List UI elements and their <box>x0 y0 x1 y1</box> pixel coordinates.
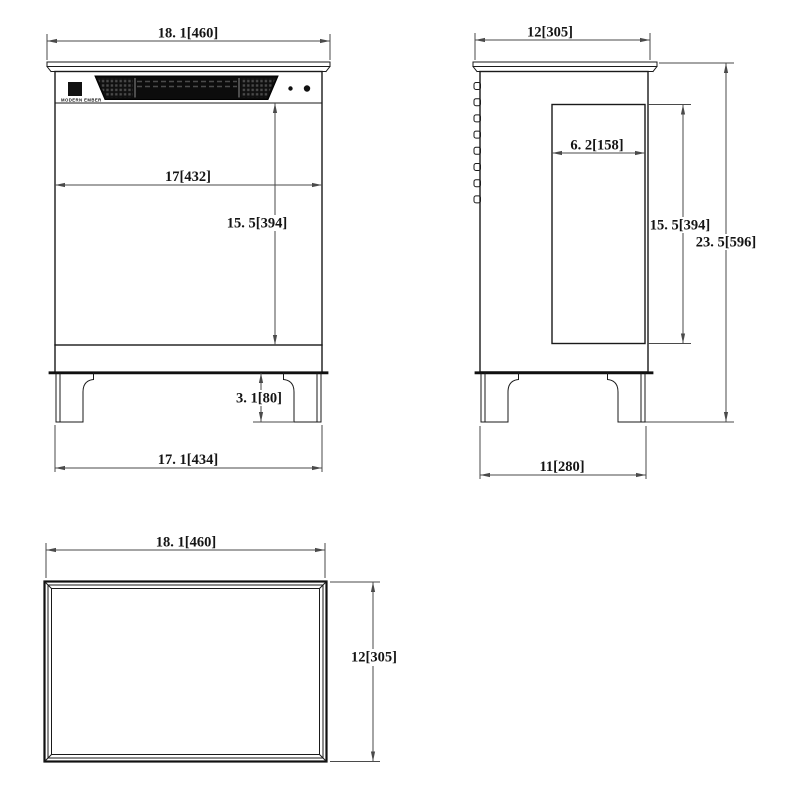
side-dim-top-depth: 12[305] <box>475 25 650 61</box>
indicator-dot-icon <box>288 86 292 90</box>
side-dim-overall-height-label: 23. 5[596] <box>696 235 756 251</box>
front-view: 18. 1[460] MODERN EMBER <box>47 26 330 473</box>
technical-drawing-page: 18. 1[460] MODERN EMBER <box>0 0 800 800</box>
top-view: 18. 1[460] 12[305] <box>45 535 401 762</box>
front-dim-leg-height: 3. 1[80] <box>230 373 294 422</box>
front-dim-overall-width-label: 18. 1[460] <box>158 26 218 42</box>
front-dim-inner-width: 17[432] <box>55 169 322 187</box>
front-vent-grille <box>95 76 278 100</box>
top-dim-depth-label: 12[305] <box>351 650 397 666</box>
front-body-outline <box>55 72 322 346</box>
front-right-leg <box>284 373 322 422</box>
top-panel-frame <box>45 582 327 762</box>
fireplace-dimension-drawing: 18. 1[460] MODERN EMBER <box>0 0 800 800</box>
side-left-leg <box>481 373 519 422</box>
brand-logo-mark <box>68 82 82 96</box>
front-dim-leg-height-label: 3. 1[80] <box>236 391 282 407</box>
side-right-leg <box>608 373 646 422</box>
top-dim-depth: 12[305] <box>330 582 400 762</box>
side-dim-top-depth-label: 12[305] <box>527 25 573 41</box>
side-dim-opening-height-label: 15. 5[394] <box>650 218 710 234</box>
top-dim-width: 18. 1[460] <box>46 535 325 579</box>
brand-logo: MODERN EMBER <box>61 82 102 103</box>
side-dim-opening-height: 15. 5[394] <box>648 105 710 344</box>
top-dim-width-label: 18. 1[460] <box>156 535 216 551</box>
front-top-panel <box>47 62 330 72</box>
front-dim-opening-height: 15. 5[394] <box>211 103 304 345</box>
front-dim-overall-width: 18. 1[460] <box>47 26 330 61</box>
front-dim-opening-height-label: 15. 5[394] <box>227 216 287 232</box>
brand-logo-text: MODERN EMBER <box>61 98 102 103</box>
side-dim-recess-depth-label: 6. 2[158] <box>570 138 623 154</box>
side-dim-base-depth: 11[280] <box>480 426 646 479</box>
front-dim-base-width: 17. 1[434] <box>55 425 322 472</box>
front-left-leg <box>56 373 94 422</box>
power-button-icon <box>304 85 310 91</box>
front-plinth <box>50 345 327 373</box>
side-view: 12[305] 6. 2[1 <box>473 25 757 480</box>
side-body-outline <box>480 72 648 373</box>
side-dim-base-depth-label: 11[280] <box>539 459 584 475</box>
control-buttons <box>288 85 310 91</box>
front-dim-inner-width-label: 17[432] <box>165 169 211 185</box>
front-dim-base-width-label: 17. 1[434] <box>158 452 218 468</box>
side-dim-recess-depth: 6. 2[158] <box>552 138 645 156</box>
side-dim-overall-height: 23. 5[596] <box>618 63 757 422</box>
side-top-panel <box>473 62 657 72</box>
side-legs <box>481 373 645 422</box>
